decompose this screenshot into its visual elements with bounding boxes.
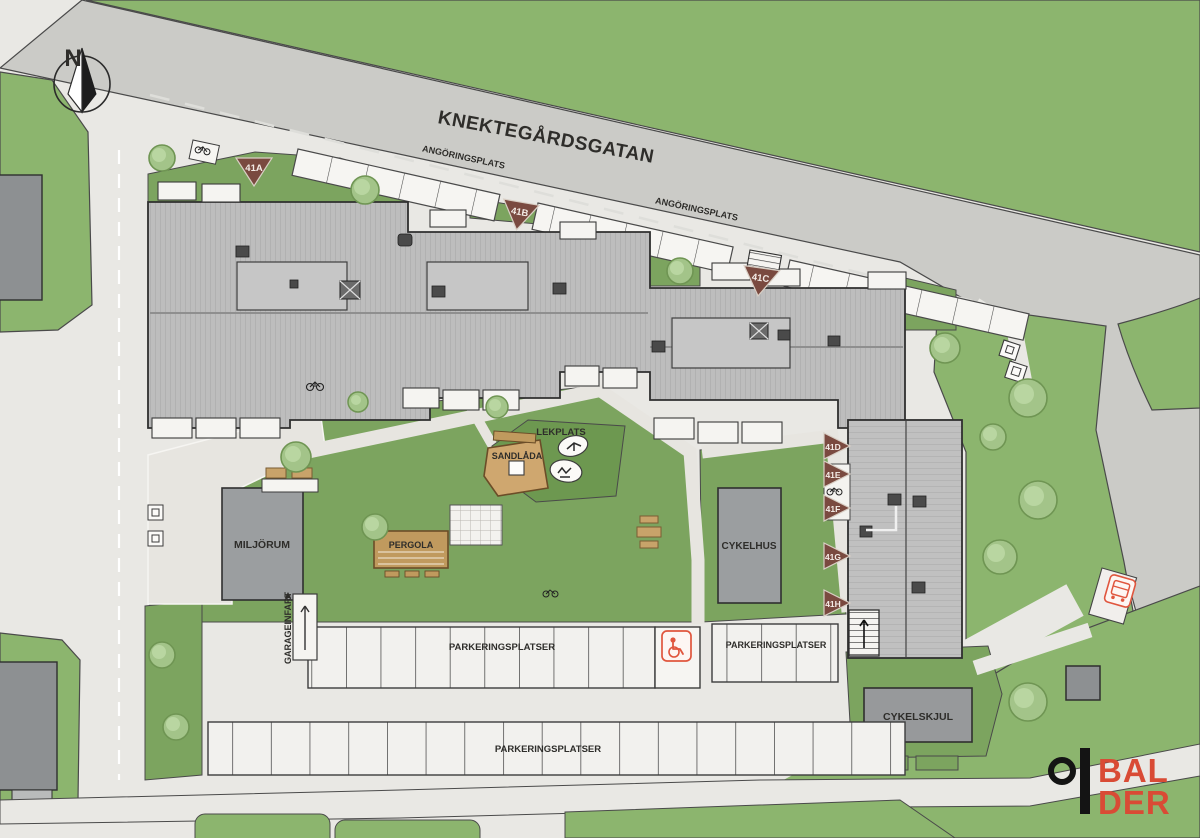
tree-icon bbox=[281, 442, 311, 472]
picnic-table-icon bbox=[637, 516, 661, 548]
tree-icon bbox=[1009, 683, 1047, 721]
tree-icon bbox=[362, 514, 388, 540]
tree-icon bbox=[351, 176, 379, 204]
marker-label: 41D bbox=[825, 442, 841, 452]
hedge-2 bbox=[916, 756, 958, 770]
north-label: N bbox=[64, 45, 81, 72]
sandlada-box bbox=[509, 461, 524, 475]
tree-icon bbox=[486, 396, 508, 418]
marker-label: 41G bbox=[825, 552, 841, 562]
marker-label: 41E bbox=[825, 470, 840, 480]
green-patch-south-1 bbox=[195, 814, 330, 838]
marker-label: 41A bbox=[245, 163, 263, 174]
miljorum-label: MILJÖRUM bbox=[234, 538, 290, 551]
tree-icon bbox=[163, 714, 189, 740]
tree-icon bbox=[980, 424, 1006, 450]
garageinfart-label: GARAGEINFART bbox=[283, 591, 293, 664]
tree-icon bbox=[348, 392, 368, 412]
balder-logo-text-2: DER bbox=[1098, 784, 1171, 821]
roof-terrace-3 bbox=[672, 318, 790, 368]
neighbor-building-west bbox=[0, 175, 42, 300]
bench-pad bbox=[262, 479, 318, 492]
marker-label: 41F bbox=[826, 504, 841, 514]
cykelhus-label: CYKELHUS bbox=[721, 541, 776, 552]
pergola-label: PERGOLA bbox=[389, 540, 434, 550]
site-plan-canvas: 41A 41B 41C 41D 41E 41F 41G 41H KNEKTEGÅ… bbox=[0, 0, 1200, 838]
parkering-label-3: PARKERINGSPLATSER bbox=[495, 744, 601, 755]
trellis-deck bbox=[450, 505, 502, 545]
parking-row1-b bbox=[712, 624, 838, 682]
green-strip-west bbox=[145, 600, 202, 780]
parkering-label-1: PARKERINGSPLATSER bbox=[449, 642, 555, 653]
lekplats-label: LEKPLATS bbox=[536, 427, 585, 438]
cykelskjul-label: CYKELSKJUL bbox=[883, 711, 954, 723]
handicap-parking-icon bbox=[662, 631, 691, 661]
tree-icon bbox=[667, 258, 693, 284]
site-plan: 41A 41B 41C 41D 41E 41F 41G 41H KNEKTEGÅ… bbox=[0, 0, 1200, 838]
parkering-label-2: PARKERINGSPLATSER bbox=[726, 640, 827, 650]
neighbor-building-southwest bbox=[0, 662, 57, 790]
sandlada-label: SANDLÅDA bbox=[492, 451, 543, 461]
green-patch-south-2 bbox=[335, 820, 480, 838]
tree-icon bbox=[149, 145, 175, 171]
tree-icon bbox=[149, 642, 175, 668]
tree-icon bbox=[930, 333, 960, 363]
balder-logo-bar bbox=[1080, 748, 1090, 814]
tree-icon bbox=[983, 540, 1017, 574]
tree-icon bbox=[1019, 481, 1057, 519]
marker-label: 41H bbox=[825, 599, 841, 609]
parking-row1-a bbox=[308, 627, 655, 688]
shed-building bbox=[1066, 666, 1100, 700]
pergola-benches bbox=[385, 571, 439, 577]
tree-icon bbox=[1009, 379, 1047, 417]
